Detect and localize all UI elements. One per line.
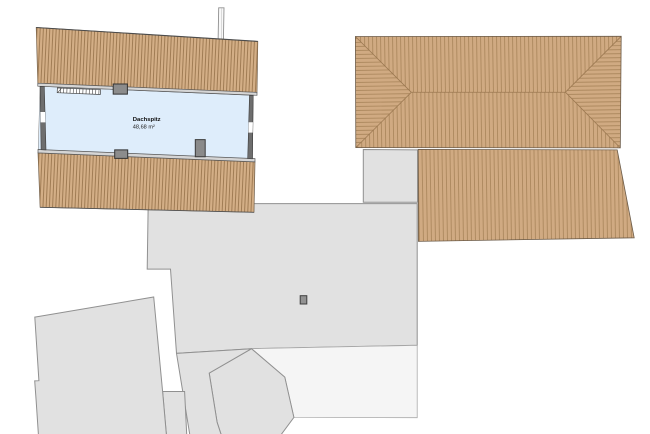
svg-text:Dachspitz: Dachspitz [133, 117, 161, 123]
svg-text:48,68 m²: 48,68 m² [133, 125, 155, 131]
